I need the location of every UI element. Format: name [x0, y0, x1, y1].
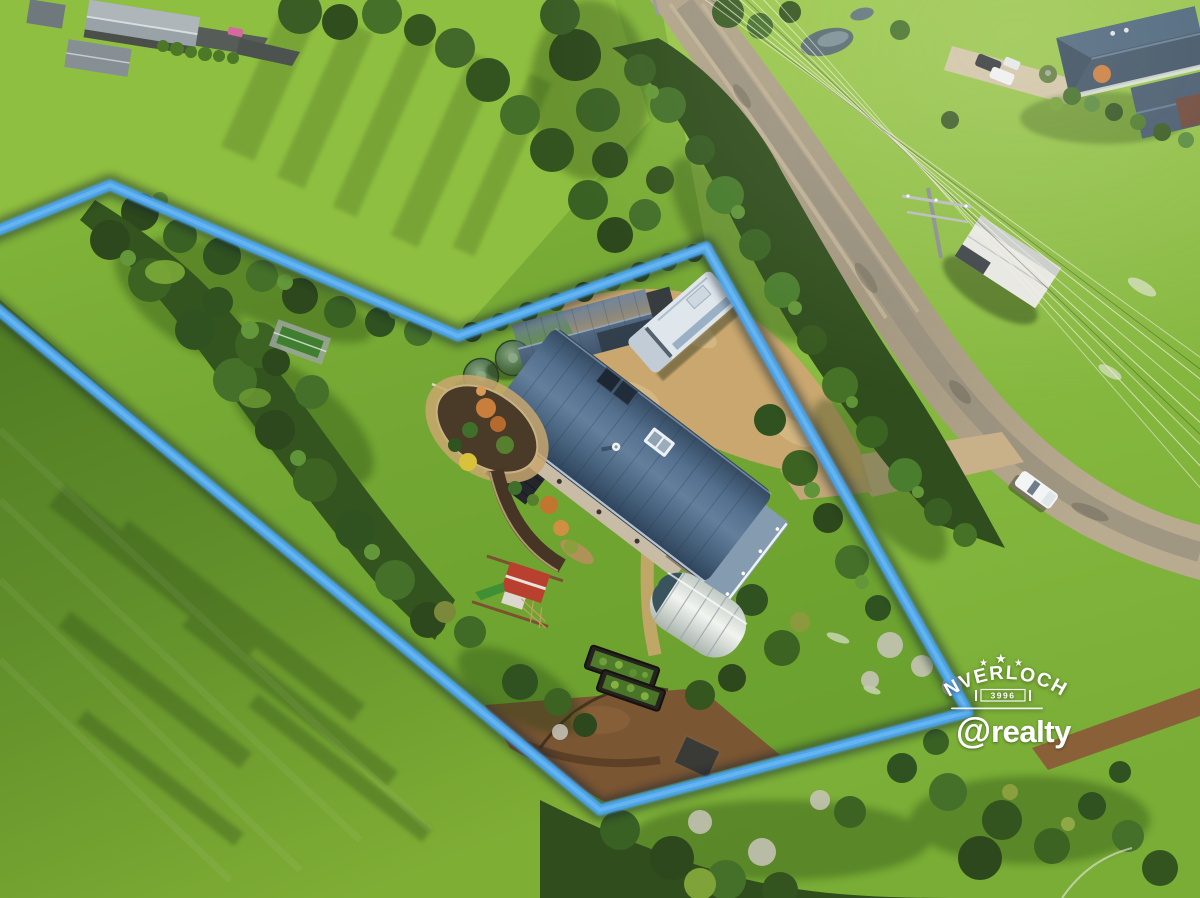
badge-postcode: 3996: [991, 691, 1016, 701]
realty-logo: @realty: [956, 710, 1072, 751]
realty-at-symbol: @: [956, 710, 991, 751]
svg-text:@realty: @realty: [956, 710, 1072, 751]
aerial-photo: /*bind stroke color*/ ★ ★ ★ INVERLOCH 39…: [0, 0, 1200, 898]
sun-glow: [0, 0, 1200, 898]
realty-brand: realty: [991, 714, 1072, 749]
aerial-photo-canvas: /*bind stroke color*/ ★ ★ ★ INVERLOCH 39…: [0, 0, 1200, 898]
